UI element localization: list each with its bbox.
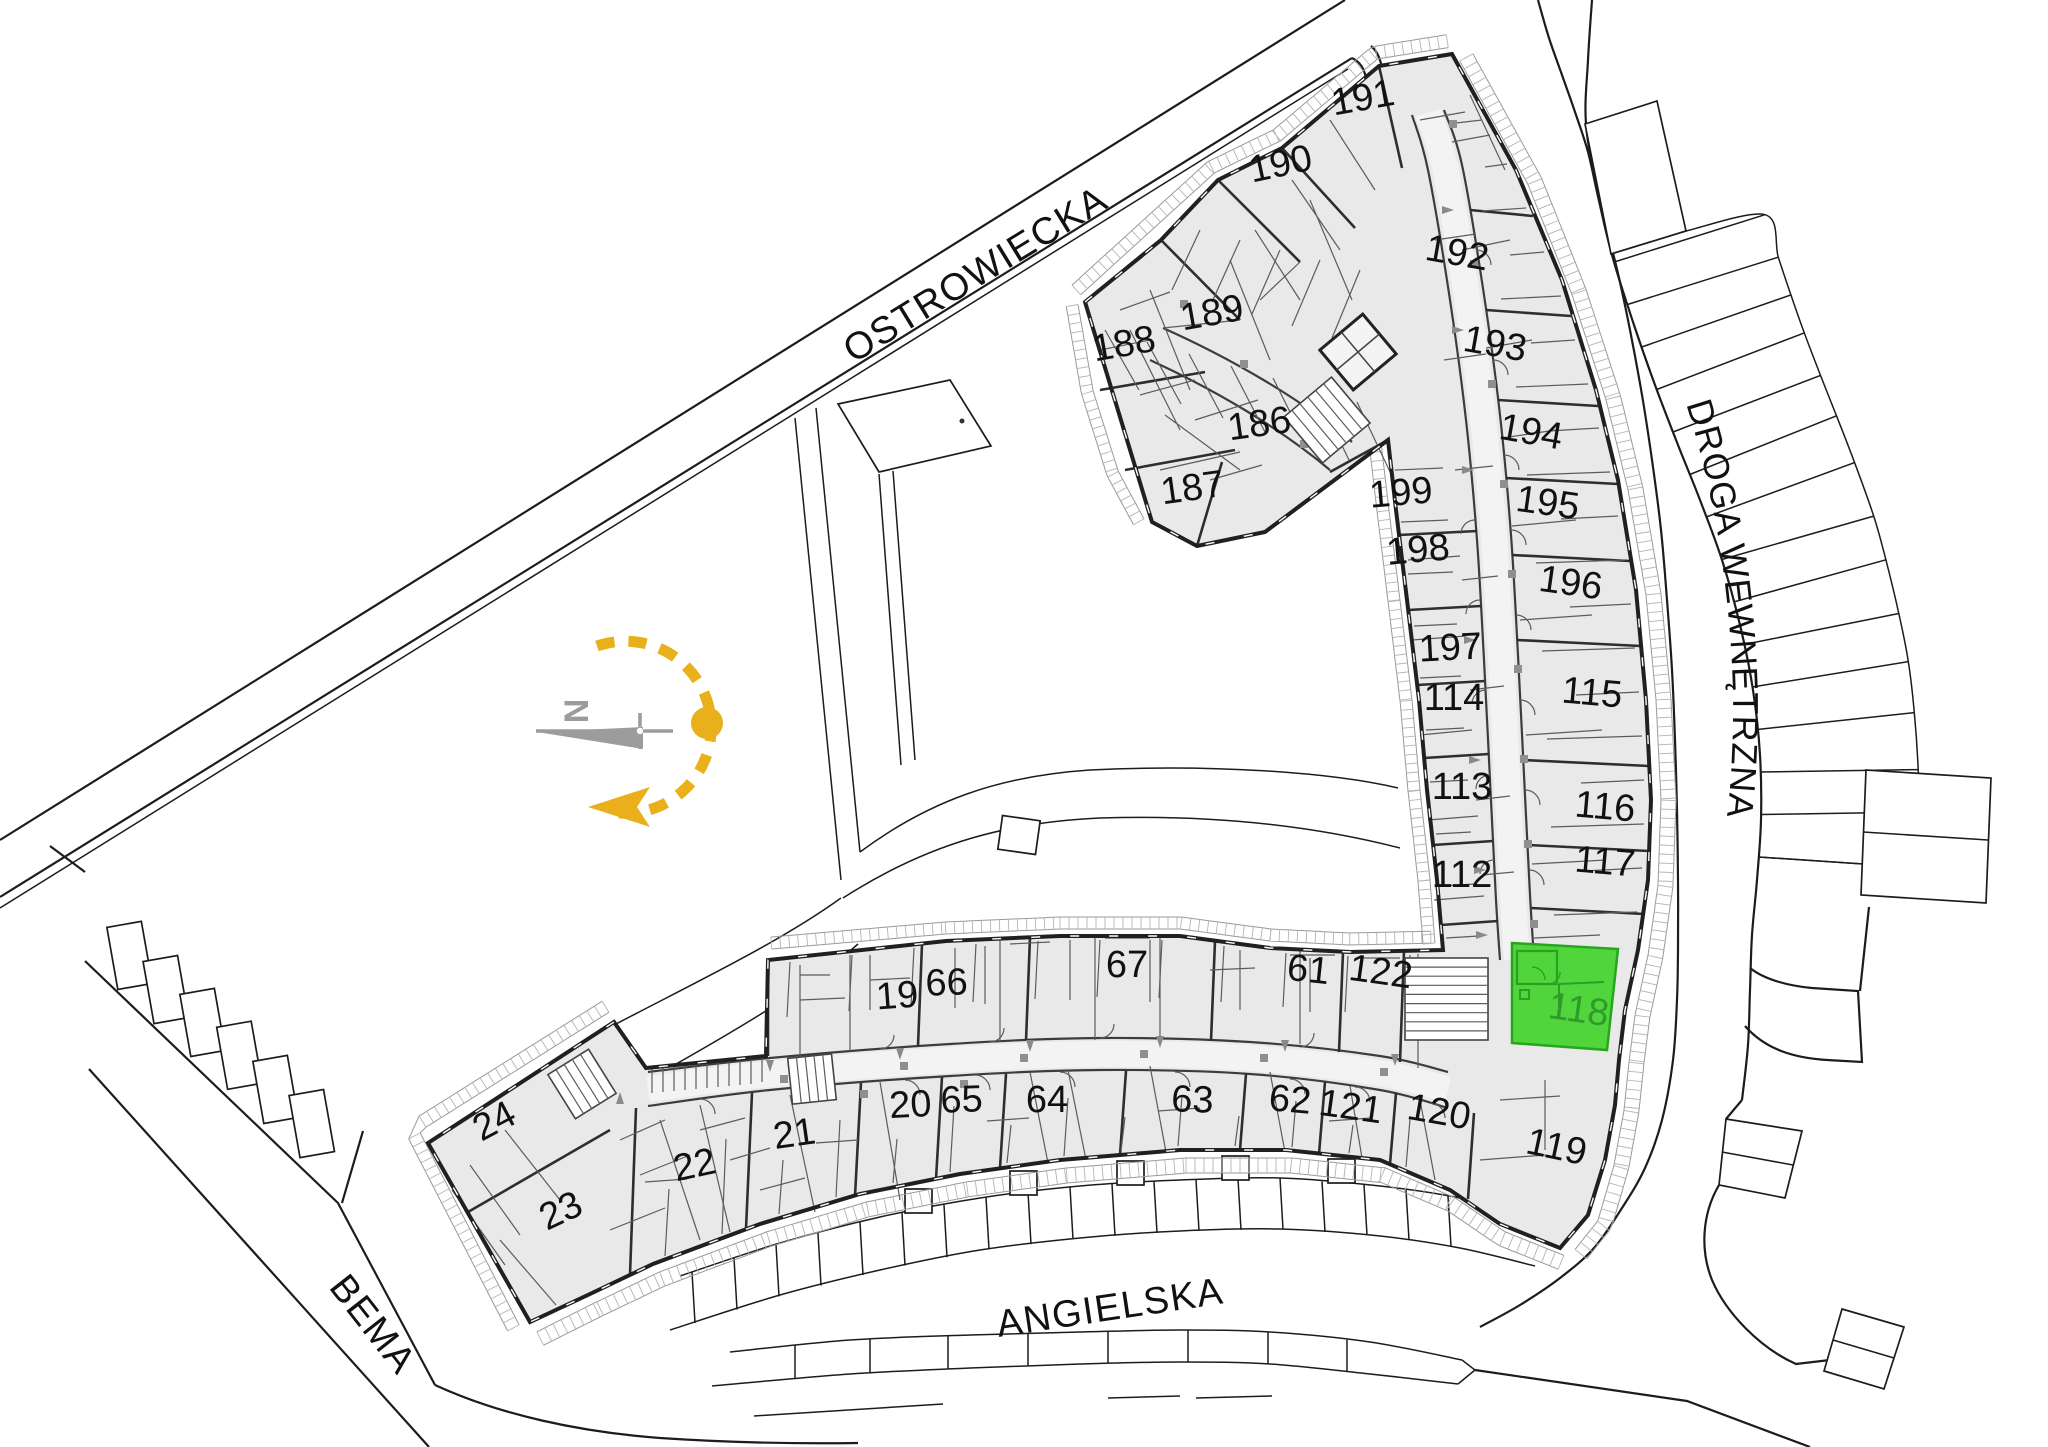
svg-text:N: N bbox=[558, 699, 596, 724]
svg-text:113: 113 bbox=[1432, 766, 1493, 808]
svg-text:198: 198 bbox=[1385, 526, 1452, 573]
svg-text:22: 22 bbox=[669, 1140, 719, 1190]
svg-text:199: 199 bbox=[1368, 469, 1435, 516]
svg-text:116: 116 bbox=[1573, 783, 1637, 830]
svg-text:187: 187 bbox=[1158, 463, 1227, 513]
svg-text:115: 115 bbox=[1560, 669, 1624, 716]
svg-text:112: 112 bbox=[1432, 854, 1493, 896]
svg-text:186: 186 bbox=[1225, 399, 1294, 449]
svg-text:65: 65 bbox=[940, 1078, 984, 1121]
svg-text:122: 122 bbox=[1346, 947, 1415, 997]
svg-text:117: 117 bbox=[1573, 838, 1637, 885]
svg-text:197: 197 bbox=[1418, 625, 1484, 670]
svg-text:114: 114 bbox=[1424, 677, 1485, 719]
svg-text:21: 21 bbox=[770, 1110, 818, 1157]
svg-text:121: 121 bbox=[1316, 1082, 1385, 1132]
svg-text:62: 62 bbox=[1267, 1077, 1313, 1123]
svg-text:63: 63 bbox=[1171, 1078, 1215, 1121]
svg-text:19: 19 bbox=[875, 974, 920, 1019]
svg-text:64: 64 bbox=[1026, 1079, 1068, 1121]
svg-text:20: 20 bbox=[888, 1083, 932, 1127]
svg-text:195: 195 bbox=[1513, 478, 1582, 528]
svg-text:67: 67 bbox=[1106, 944, 1148, 986]
svg-text:61: 61 bbox=[1285, 947, 1331, 993]
svg-text:118: 118 bbox=[1546, 985, 1612, 1035]
svg-text:196: 196 bbox=[1536, 558, 1605, 608]
svg-text:66: 66 bbox=[925, 961, 969, 1004]
